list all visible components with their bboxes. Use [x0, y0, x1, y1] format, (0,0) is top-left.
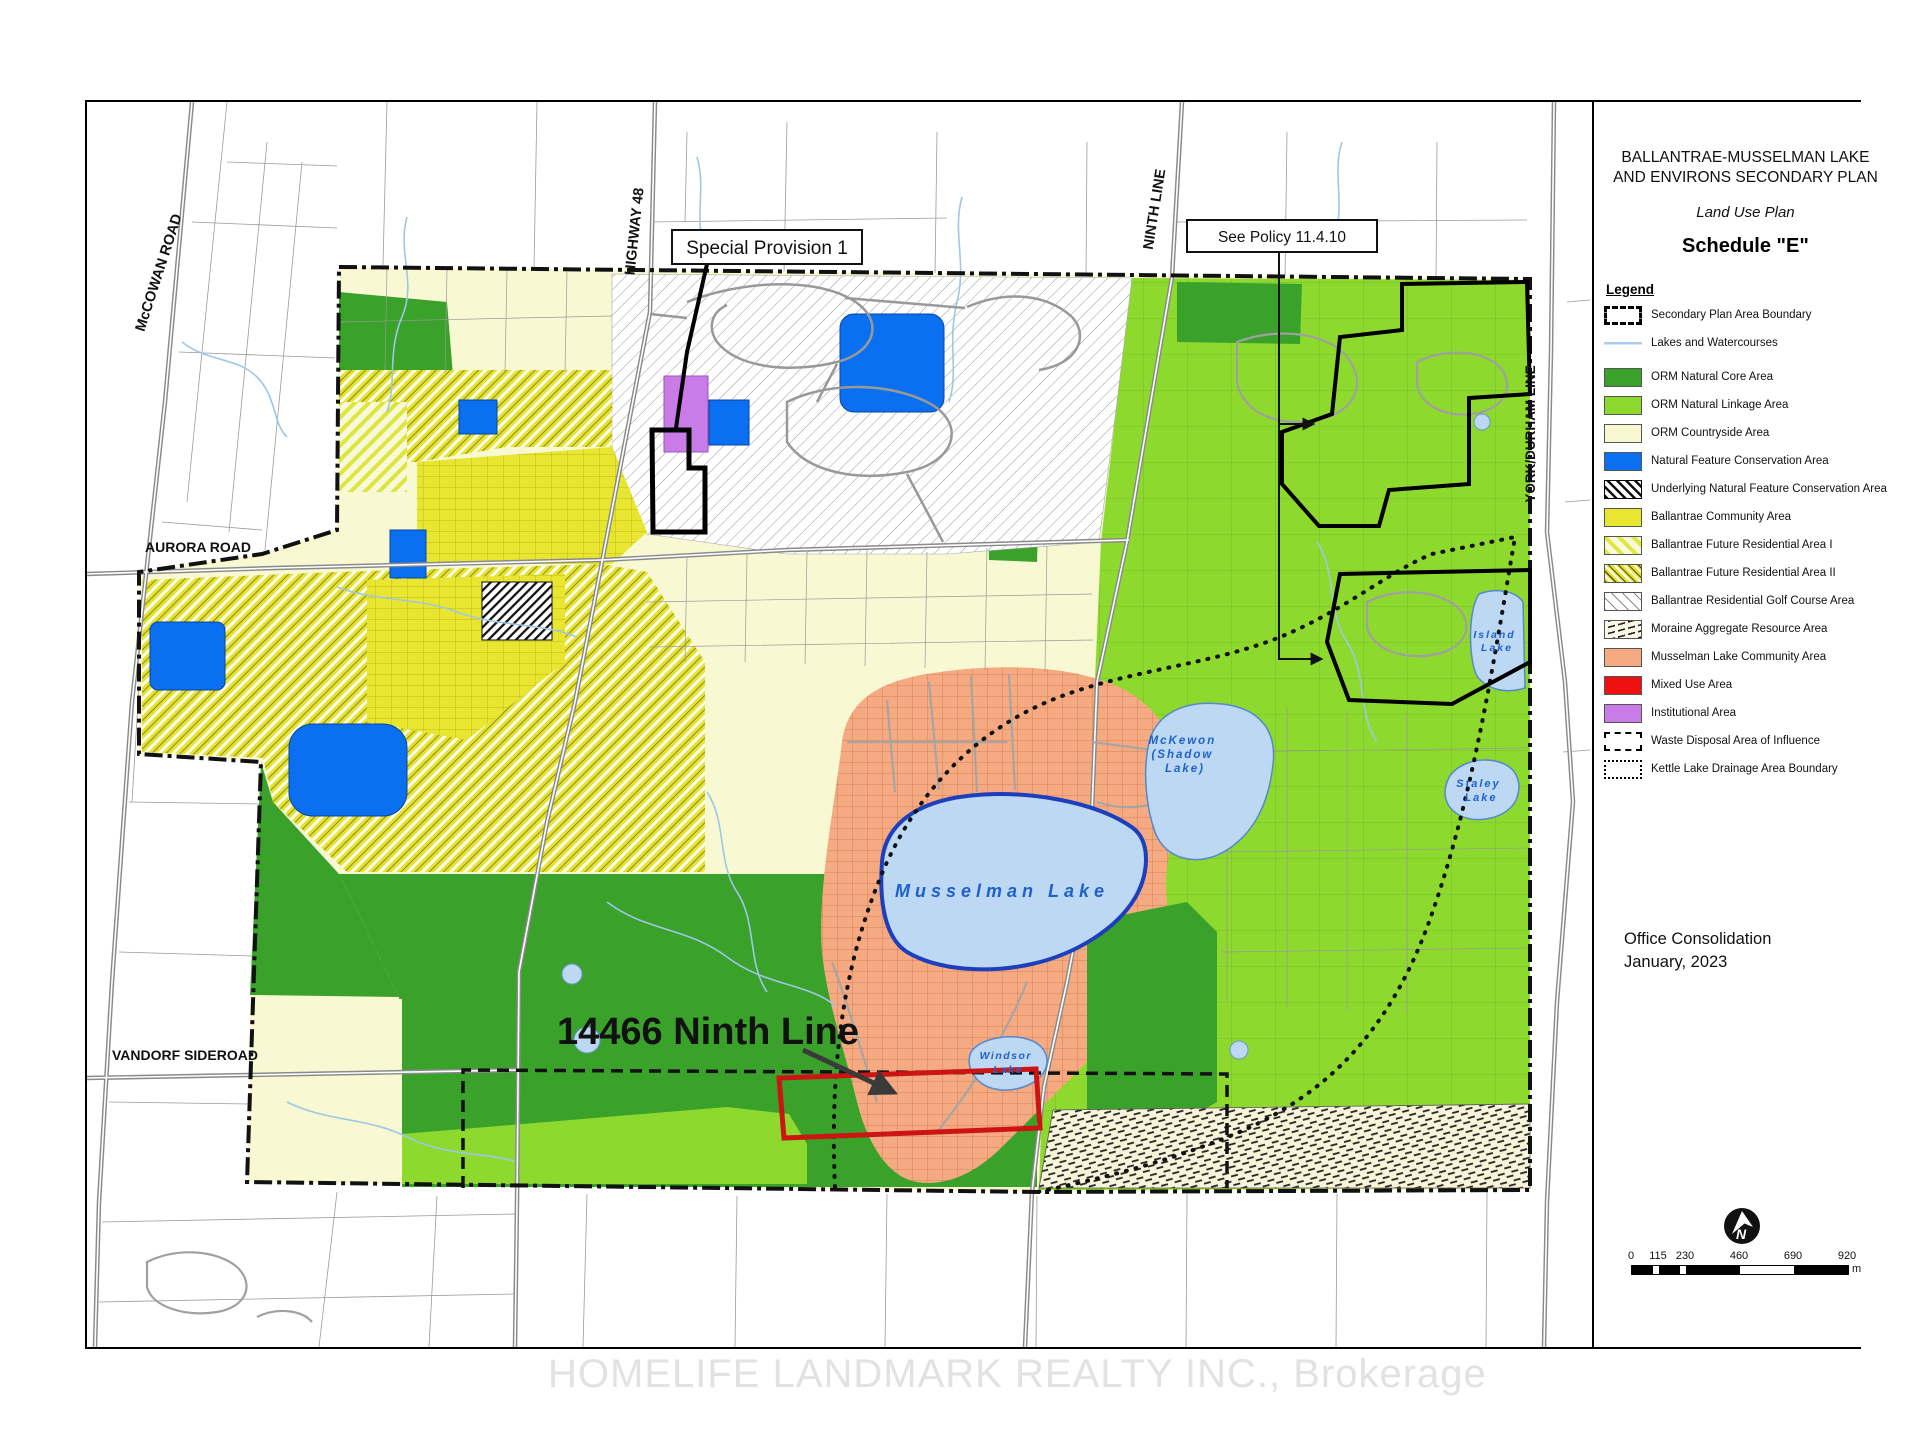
- legend-label: Moraine Aggregate Resource Area: [1651, 623, 1827, 635]
- legend-item-institutional: Institutional Area: [1604, 703, 1887, 723]
- future-res-1-swatch: [1604, 536, 1642, 555]
- legend-item-mixed-use: Mixed Use Area: [1604, 675, 1887, 695]
- musselman-label: Musselman Lake: [895, 881, 1109, 901]
- scale-bar: 0 115 230 460 690 920 m: [1631, 1250, 1847, 1280]
- legend-label: Natural Feature Conservation Area: [1651, 455, 1829, 467]
- plan-title: BALLANTRAE-MUSSELMAN LAKE AND ENVIRONS S…: [1608, 148, 1883, 188]
- property-label: 14466 Ninth Line: [557, 1011, 859, 1053]
- legend-item-orm-core: ORM Natural Core Area: [1604, 367, 1887, 387]
- legend-item-conservation: Natural Feature Conservation Area: [1604, 451, 1887, 471]
- orm-countryside-swatch: [1604, 424, 1642, 443]
- scale-tick: 0: [1628, 1250, 1634, 1262]
- plan-sheet: Special Provision 1 See Policy 11.4.10 1…: [85, 100, 1861, 1349]
- ballantrae-community-swatch: [1604, 508, 1642, 527]
- musselman-community-swatch: [1604, 648, 1642, 667]
- legend-label: Institutional Area: [1651, 707, 1736, 719]
- waste-disposal-swatch: [1604, 732, 1642, 751]
- legend-label: Ballantrae Future Residential Area II: [1651, 567, 1836, 579]
- underlying-nfc-swatch: [1604, 480, 1642, 499]
- legend-item-orm-countryside: ORM Countryside Area: [1604, 423, 1887, 443]
- special-provision-label: Special Provision 1: [686, 238, 848, 259]
- north-arrow-n: N: [1736, 1226, 1747, 1242]
- plan-schedule: Schedule "E": [1604, 235, 1887, 258]
- legend-label: Secondary Plan Area Boundary: [1651, 309, 1811, 321]
- legend-label: Ballantrae Residential Golf Course Area: [1651, 595, 1854, 607]
- road-label-vandorf: VANDORF SIDEROAD: [112, 1047, 258, 1063]
- map-area: Special Provision 1 See Policy 11.4.10 1…: [87, 102, 1592, 1347]
- zone-underlying-nfc: [482, 582, 552, 640]
- golf-course-swatch: [1604, 592, 1642, 611]
- office-consolidation-note: Office Consolidation January, 2023: [1624, 928, 1771, 974]
- legend-item-orm-linkage: ORM Natural Linkage Area: [1604, 395, 1887, 415]
- future-res-2-swatch: [1604, 564, 1642, 583]
- plan-subtitle: Land Use Plan: [1604, 204, 1887, 221]
- legend-label: ORM Natural Linkage Area: [1651, 399, 1788, 411]
- legend-label: Lakes and Watercourses: [1651, 337, 1778, 349]
- scale-tick: 690: [1784, 1250, 1802, 1262]
- scale-unit: m: [1852, 1263, 1861, 1275]
- legend-item-future-res-1: Ballantrae Future Residential Area I: [1604, 535, 1887, 555]
- legend-item-underlying-nfc: Underlying Natural Feature Conservation …: [1604, 479, 1887, 499]
- orm-core-swatch: [1604, 368, 1642, 387]
- legend-item-moraine: Moraine Aggregate Resource Area: [1604, 619, 1887, 639]
- scale-tick: 920: [1838, 1250, 1856, 1262]
- plan-title-line2: AND ENVIRONS SECONDARY PLAN: [1608, 168, 1883, 188]
- legend-item-waste-disposal: Waste Disposal Area of Influence: [1604, 731, 1887, 751]
- legend-item-plan-boundary: Secondary Plan Area Boundary: [1604, 305, 1887, 325]
- legend-panel: BALLANTRAE-MUSSELMAN LAKE AND ENVIRONS S…: [1592, 102, 1897, 1347]
- brokerage-watermark: HOMELIFE LANDMARK REALTY INC., Brokerage: [548, 1352, 1487, 1397]
- plan-title-line1: BALLANTRAE-MUSSELMAN LAKE: [1608, 148, 1883, 168]
- plan-boundary-swatch: [1604, 306, 1642, 325]
- zone-countryside-notch: [250, 997, 402, 1182]
- legend-label: Mixed Use Area: [1651, 679, 1732, 691]
- legend-label: Waste Disposal Area of Influence: [1651, 735, 1820, 747]
- scale-bar-segments: [1631, 1265, 1849, 1275]
- legend-label: Ballantrae Community Area: [1651, 511, 1791, 523]
- legend-label: ORM Natural Core Area: [1651, 371, 1773, 383]
- legend-item-kettle-drainage: Kettle Lake Drainage Area Boundary: [1604, 759, 1887, 779]
- legend-heading: Legend: [1606, 282, 1887, 297]
- see-policy-label: See Policy 11.4.10: [1218, 229, 1346, 246]
- north-arrow: N: [1722, 1206, 1762, 1246]
- legend-label: Musselman Lake Community Area: [1651, 651, 1826, 663]
- scale-tick: 230: [1676, 1250, 1694, 1262]
- institutional-swatch: [1604, 704, 1642, 723]
- orm-linkage-swatch: [1604, 396, 1642, 415]
- legend-item-future-res-2: Ballantrae Future Residential Area II: [1604, 563, 1887, 583]
- legend-item-lakes: Lakes and Watercourses: [1604, 333, 1887, 353]
- zone-institutional: [664, 376, 708, 452]
- kettle-drainage-swatch: [1604, 760, 1642, 779]
- scale-tick: 115: [1649, 1250, 1667, 1262]
- legend-label: Underlying Natural Feature Conservation …: [1651, 483, 1887, 495]
- legend-item-ballantrae-community: Ballantrae Community Area: [1604, 507, 1887, 527]
- office-note-line2: January, 2023: [1624, 951, 1771, 974]
- legend-label: ORM Countryside Area: [1651, 427, 1769, 439]
- legend-item-golf-course: Ballantrae Residential Golf Course Area: [1604, 591, 1887, 611]
- map-svg: Special Provision 1 See Policy 11.4.10 1…: [87, 102, 1592, 1347]
- mixed-use-swatch: [1604, 676, 1642, 695]
- moraine-swatch: [1604, 620, 1642, 639]
- road-label-york-durham: YORK/DURHAM LINE: [1523, 365, 1538, 502]
- conservation-swatch: [1604, 452, 1642, 471]
- zone-fr1: [339, 402, 407, 492]
- lakes-swatch: [1604, 334, 1642, 353]
- office-note-line1: Office Consolidation: [1624, 928, 1771, 951]
- road-label-aurora: AURORA ROAD: [145, 539, 251, 555]
- legend-label: Kettle Lake Drainage Area Boundary: [1651, 763, 1838, 775]
- scale-tick: 460: [1730, 1250, 1748, 1262]
- legend-label: Ballantrae Future Residential Area I: [1651, 539, 1833, 551]
- zone-moraine: [1039, 1104, 1530, 1188]
- legend-item-musselman-community: Musselman Lake Community Area: [1604, 647, 1887, 667]
